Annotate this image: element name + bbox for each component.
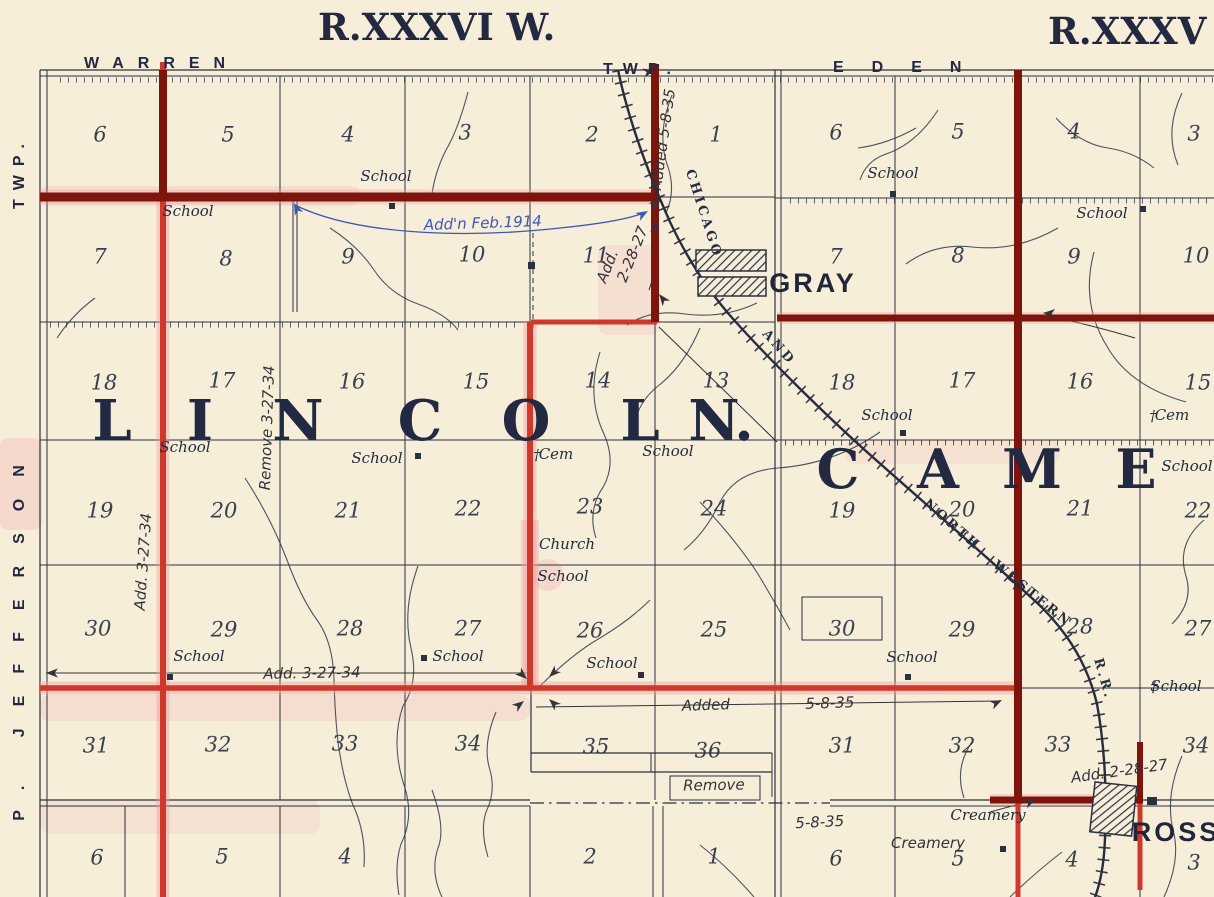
cem-label: Cem [539, 445, 574, 463]
section-number: 30 [829, 617, 856, 641]
section-number: 4 [1066, 120, 1080, 144]
school-label: School [360, 167, 411, 185]
section-number: 32 [949, 734, 976, 758]
section-number: 19 [87, 499, 114, 523]
ross-block [1090, 782, 1137, 836]
town-label-gray: GRAY [769, 268, 857, 298]
section-number: 22 [1184, 499, 1212, 523]
section-number: 32 [205, 733, 232, 757]
section-number: 8 [219, 247, 232, 271]
township-letter: E [1115, 437, 1156, 501]
township-letter: L [92, 388, 131, 454]
cem-label: Cem [1155, 406, 1190, 424]
section-number: 29 [210, 618, 238, 642]
cemetery-cross-symbol: † [1150, 678, 1158, 696]
section-number: 33 [332, 732, 359, 756]
map-canvas: 6543217891011181716151413192021222324302… [0, 0, 1214, 897]
township-letter: N [688, 388, 739, 454]
section-number: 16 [339, 370, 366, 394]
school-label: School [432, 647, 483, 665]
township-label-eden: EDEN [833, 59, 989, 76]
building-square-symbol [890, 191, 896, 197]
cemetery-cross-symbol: † [1149, 407, 1157, 425]
section-number: 19 [829, 499, 856, 523]
west-edge-title-fragment: ION. [0, 326, 5, 438]
school-label: School [351, 449, 402, 467]
section-number: 28 [336, 617, 364, 641]
section-number: 16 [1067, 370, 1094, 394]
township-letter: M [1002, 437, 1062, 501]
section-number: 23 [576, 495, 604, 519]
church-label: Church [539, 535, 595, 553]
school-label: School [1161, 457, 1212, 475]
section-number: 2 [584, 123, 598, 147]
township-letter: . [734, 388, 754, 454]
section-number: 15 [463, 370, 490, 394]
section-number: 18 [829, 371, 856, 395]
section-number: 10 [1183, 244, 1210, 268]
section-number: 4 [1064, 848, 1078, 872]
section-number: 6 [829, 847, 842, 871]
handwritten-annotation: Add. 3-27-34 [262, 663, 361, 683]
section-number: 5 [215, 845, 228, 869]
township-label-warren: WARREN [84, 55, 239, 72]
range-title-left: R.XXXVI W. [318, 5, 555, 49]
township-letter: A [916, 437, 960, 501]
school-label: School [586, 654, 637, 672]
handwritten-annotation: Remove [683, 775, 745, 794]
building-square-symbol [905, 674, 911, 680]
section-number: 6 [90, 846, 103, 870]
section-number: 9 [341, 245, 354, 269]
section-number: 5 [221, 123, 234, 147]
section-number: 29 [948, 618, 976, 642]
section-number: 35 [583, 735, 610, 759]
section-number: 21 [1066, 497, 1094, 521]
range-title-right: R.XXXV [1048, 9, 1208, 53]
handwritten-annotation: 5-8-35 [795, 812, 845, 833]
section-number: 3 [1187, 122, 1200, 146]
section-number: 31 [829, 734, 856, 758]
school-label: School [886, 648, 937, 666]
section-number: 2 [582, 845, 596, 869]
school-label: School [173, 647, 224, 665]
section-number: 34 [1183, 734, 1210, 758]
school-label: School [162, 202, 213, 220]
building-square-symbol [900, 430, 906, 436]
section-number: 21 [334, 499, 362, 523]
gray-block-1 [696, 250, 766, 271]
section-number: 30 [85, 617, 112, 641]
school-label: School [159, 438, 210, 456]
section-number: 3 [1187, 851, 1200, 875]
school-label: School [1150, 677, 1201, 695]
plat-map-page: 6543217891011181716151413192021222324302… [0, 0, 1214, 897]
section-number: 22 [454, 497, 482, 521]
township-letter: C [398, 388, 443, 454]
section-number: 5 [951, 120, 964, 144]
section-number: 7 [829, 245, 843, 269]
section-number: 4 [337, 845, 351, 869]
section-number: 6 [93, 123, 106, 147]
cemetery-cross-symbol: † [533, 446, 541, 464]
section-number: 24 [700, 497, 728, 521]
school-label: School [861, 406, 912, 424]
section-number: 6 [829, 121, 842, 145]
section-number: 33 [1045, 733, 1072, 757]
town-label-ross: ROSS [1132, 817, 1214, 847]
section-number: 1 [707, 845, 720, 869]
building-square-symbol [1140, 206, 1146, 212]
creamery-label: Creamery [950, 806, 1026, 824]
section-number: 17 [949, 369, 976, 393]
section-number: 4 [340, 123, 354, 147]
building-square-symbol [415, 453, 421, 459]
school-label: School [1076, 204, 1127, 222]
handwritten-annotation: 5-8-35 [805, 693, 855, 713]
section-number: 9 [1067, 245, 1080, 269]
section-number: 36 [695, 739, 722, 763]
west-edge-jefferson-label: P. JEFFERSON [11, 443, 28, 821]
building-square-symbol [167, 674, 173, 680]
section-number: 1 [709, 123, 722, 147]
handwritten-annotation: Added [680, 695, 730, 715]
section-number: 34 [455, 732, 482, 756]
school-label: School [867, 164, 918, 182]
section-number: 15 [1185, 371, 1212, 395]
west-edge-twp-label: TWP. [11, 135, 28, 209]
school-label: School [537, 567, 588, 585]
section-number: 10 [459, 243, 486, 267]
section-number: 8 [951, 244, 964, 268]
building-square-symbol [389, 203, 395, 209]
section-number: 3 [458, 121, 471, 145]
section-number: 31 [83, 734, 110, 758]
building-square-symbol [1000, 846, 1006, 852]
section-number: 7 [93, 245, 107, 269]
gray-block-2 [698, 277, 766, 296]
building-square-symbol [638, 672, 644, 678]
township-label-twp: TWP. [603, 61, 681, 78]
section-number: 20 [210, 499, 238, 523]
township-letter: N [272, 388, 323, 454]
section-number: 27 [1184, 617, 1212, 641]
building-square-symbol [421, 655, 427, 661]
school-label: School [642, 442, 693, 460]
section-number: 27 [454, 617, 482, 641]
section-number: 25 [700, 618, 728, 642]
township-letter: C [817, 437, 860, 501]
creamery-label: Creamery [891, 834, 966, 852]
section-number: 26 [576, 619, 604, 643]
section-number: 14 [585, 369, 612, 393]
